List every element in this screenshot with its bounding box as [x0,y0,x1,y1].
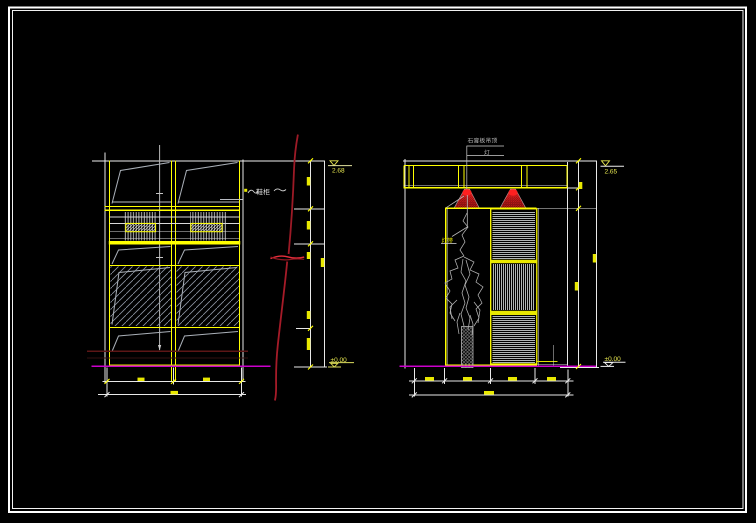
svg-text:2.65: 2.65 [605,169,618,176]
svg-text:石膏板吊顶: 石膏板吊顶 [468,138,498,145]
svg-text:鞋柜: 鞋柜 [256,189,270,197]
svg-text:2.68: 2.68 [332,168,345,175]
